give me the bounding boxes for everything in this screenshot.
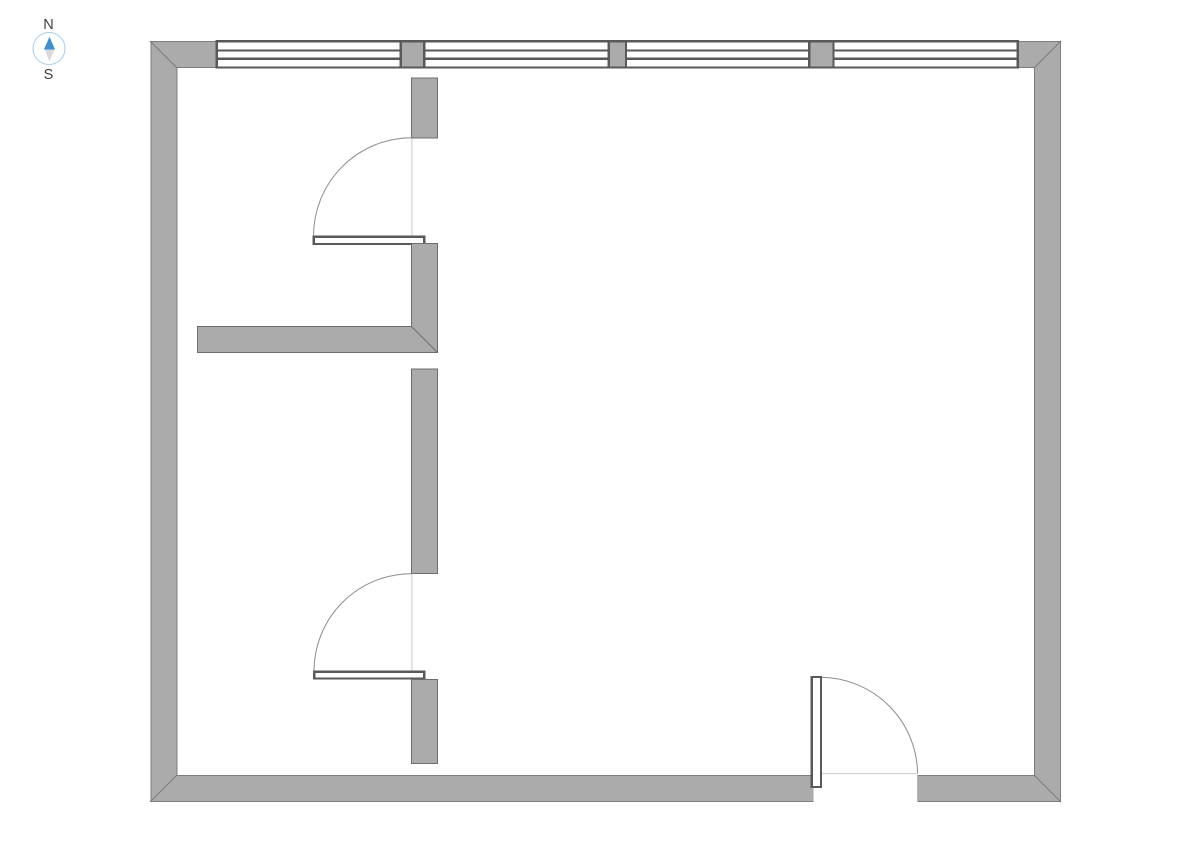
svg-text:S: S	[44, 67, 54, 83]
svg-text:N: N	[43, 17, 53, 33]
